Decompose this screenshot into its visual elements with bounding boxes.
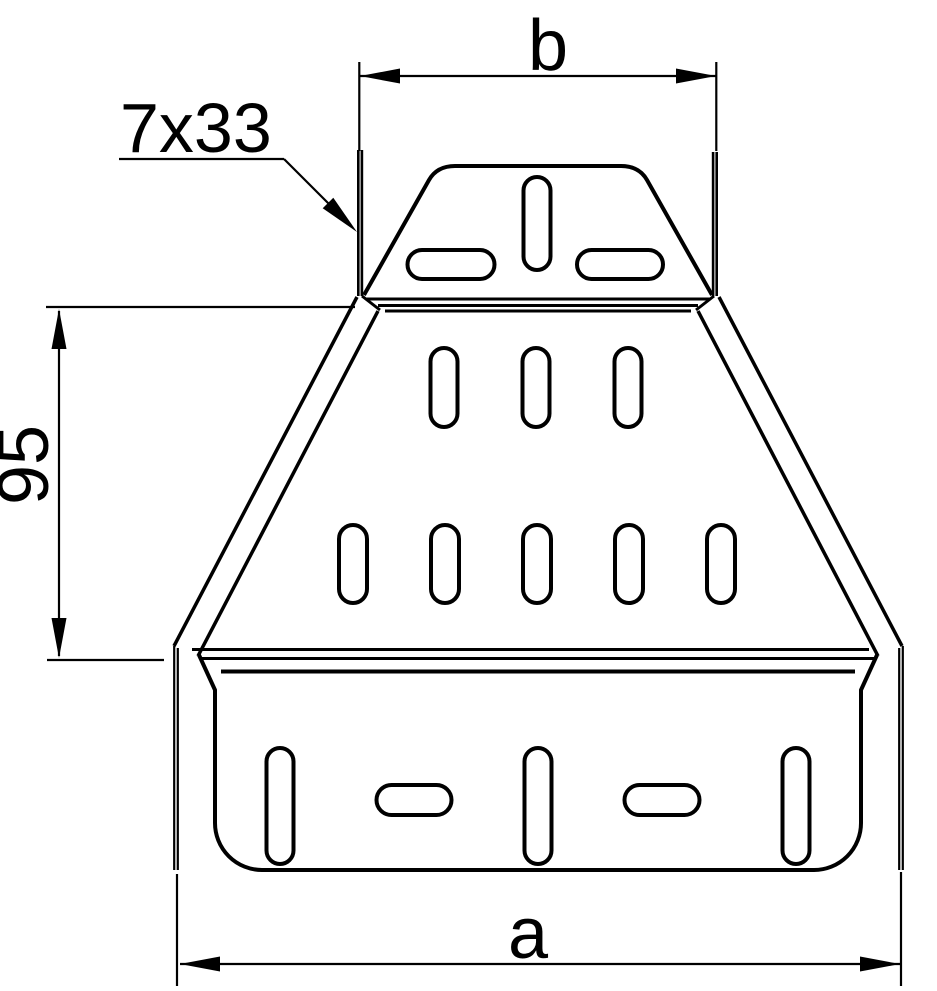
dim-b-label: b [528, 6, 568, 86]
dim-95-label: 95 [0, 425, 64, 505]
slot-callout-label: 7x33 [120, 89, 272, 167]
drawing-page: b 95 a 7x33 [0, 0, 937, 991]
dim-a-label: a [508, 894, 549, 974]
technical-drawing-reducer: b 95 a 7x33 [0, 0, 937, 991]
